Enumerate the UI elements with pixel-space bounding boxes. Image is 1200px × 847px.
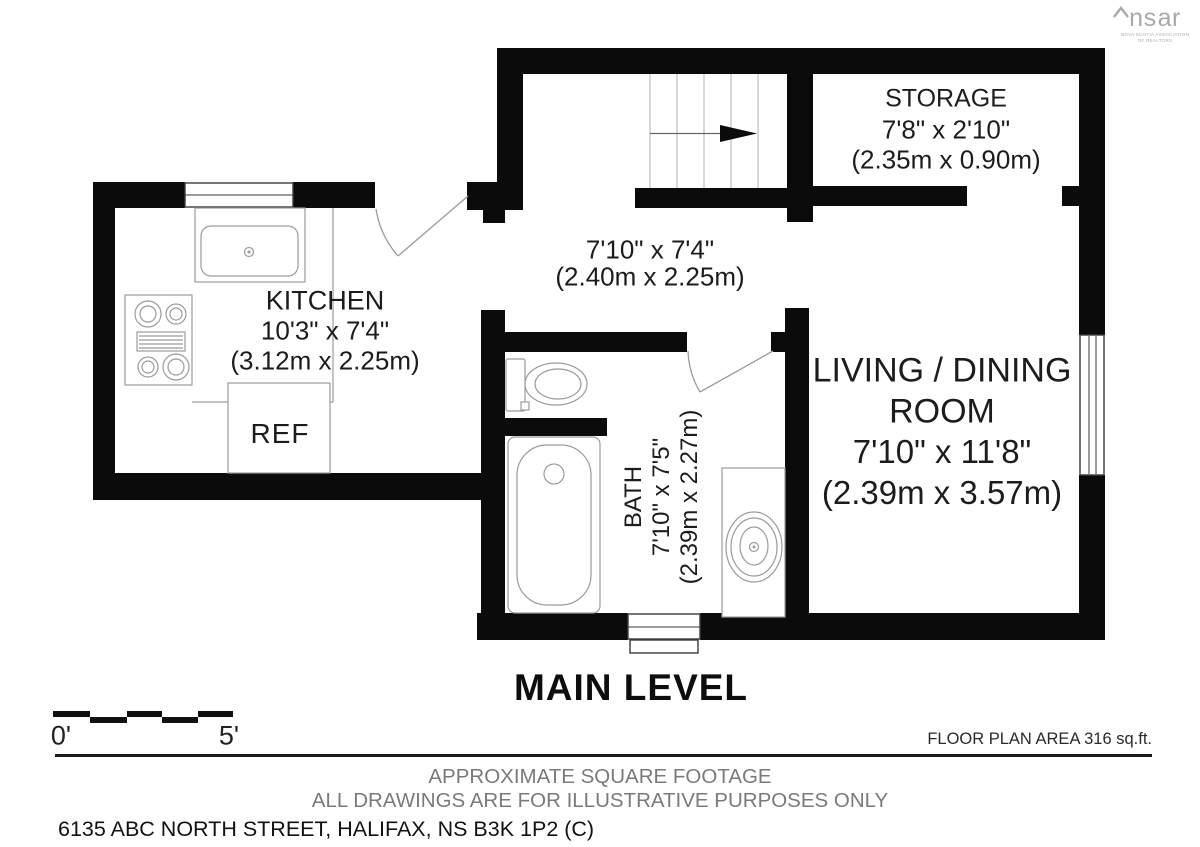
staircase [650, 74, 758, 188]
kitchen-room-name: KITCHEN [266, 286, 385, 317]
toilet [506, 359, 587, 411]
bath-dim-imperial: 7'10" x 7'5" [648, 410, 676, 585]
living-dim-metric: (2.39m x 3.57m) [822, 474, 1062, 512]
bathtub [508, 437, 600, 613]
scale-end-label: 5' [219, 721, 239, 752]
storage-dim-metric: (2.35m x 0.90m) [851, 145, 1040, 176]
disclaimer-line2: ALL DRAWINGS ARE FOR ILLUSTRATIVE PURPOS… [312, 789, 888, 813]
kitchen-window [185, 183, 293, 207]
property-address: 6135 ABC NORTH STREET, HALIFAX, NS B3K 1… [58, 817, 594, 842]
floor-plan-area-note: FLOOR PLAN AREA 316 sq.ft. [927, 730, 1152, 749]
entry-door-swing [376, 196, 468, 256]
bath-dim-metric: (2.39m x 2.27m) [676, 410, 704, 585]
floor-plan-page: STORAGE 7'8" x 2'10" (2.35m x 0.90m) 7'1… [0, 0, 1200, 847]
kitchen-dim-metric: (3.12m x 2.25m) [230, 346, 419, 377]
bath-window [628, 614, 700, 653]
living-room-window [1080, 335, 1104, 475]
living-room-name-line1: LIVING / DINING [813, 352, 1072, 391]
kitchen-dim-imperial: 10'3" x 7'4" [261, 316, 389, 347]
living-room-name-line2: ROOM [889, 393, 995, 432]
logo-tagline-line1: NOVA SCOTIA ASSOCIATION [1113, 32, 1197, 38]
page-title: MAIN LEVEL [514, 667, 748, 709]
scale-bar-segment [90, 717, 127, 723]
kitchen-sink [195, 208, 305, 282]
bath-door-swing [688, 351, 773, 392]
scale-bar-segment [53, 711, 90, 717]
stair-direction-arrow [720, 125, 757, 142]
logo-tagline-line2: OF REALTORS [1113, 38, 1197, 44]
scale-bar-segment [127, 711, 162, 717]
storage-dim-imperial: 7'8" x 2'10" [882, 115, 1010, 146]
logo-text-right: ar [1158, 6, 1181, 31]
vanity-sink [722, 468, 785, 617]
living-dim-imperial: 7'10" x 11'8" [853, 433, 1032, 471]
disclaimer-line1: APPROXIMATE SQUARE FOOTAGE [428, 765, 771, 789]
hall-dim-metric: (2.40m x 2.25m) [555, 262, 744, 293]
bath-room-label: BATH 7'10" x 7'5" (2.39m x 2.27m) [620, 410, 704, 585]
fridge-label: REF [251, 418, 310, 450]
scale-bar-segment [162, 717, 198, 723]
storage-room-name: STORAGE [885, 85, 1007, 114]
bath-room-name: BATH [620, 410, 648, 585]
logo-text-left: ns [1129, 6, 1156, 31]
stove [125, 295, 192, 385]
nsar-logo: ns ar NOVA SCOTIA ASSOCIATION OF REALTOR… [1113, 6, 1197, 43]
scale-bar-segment [198, 711, 233, 717]
scale-start-label: 0' [51, 721, 71, 752]
footer-divider [55, 754, 1152, 757]
house-roof-icon [1113, 6, 1129, 18]
